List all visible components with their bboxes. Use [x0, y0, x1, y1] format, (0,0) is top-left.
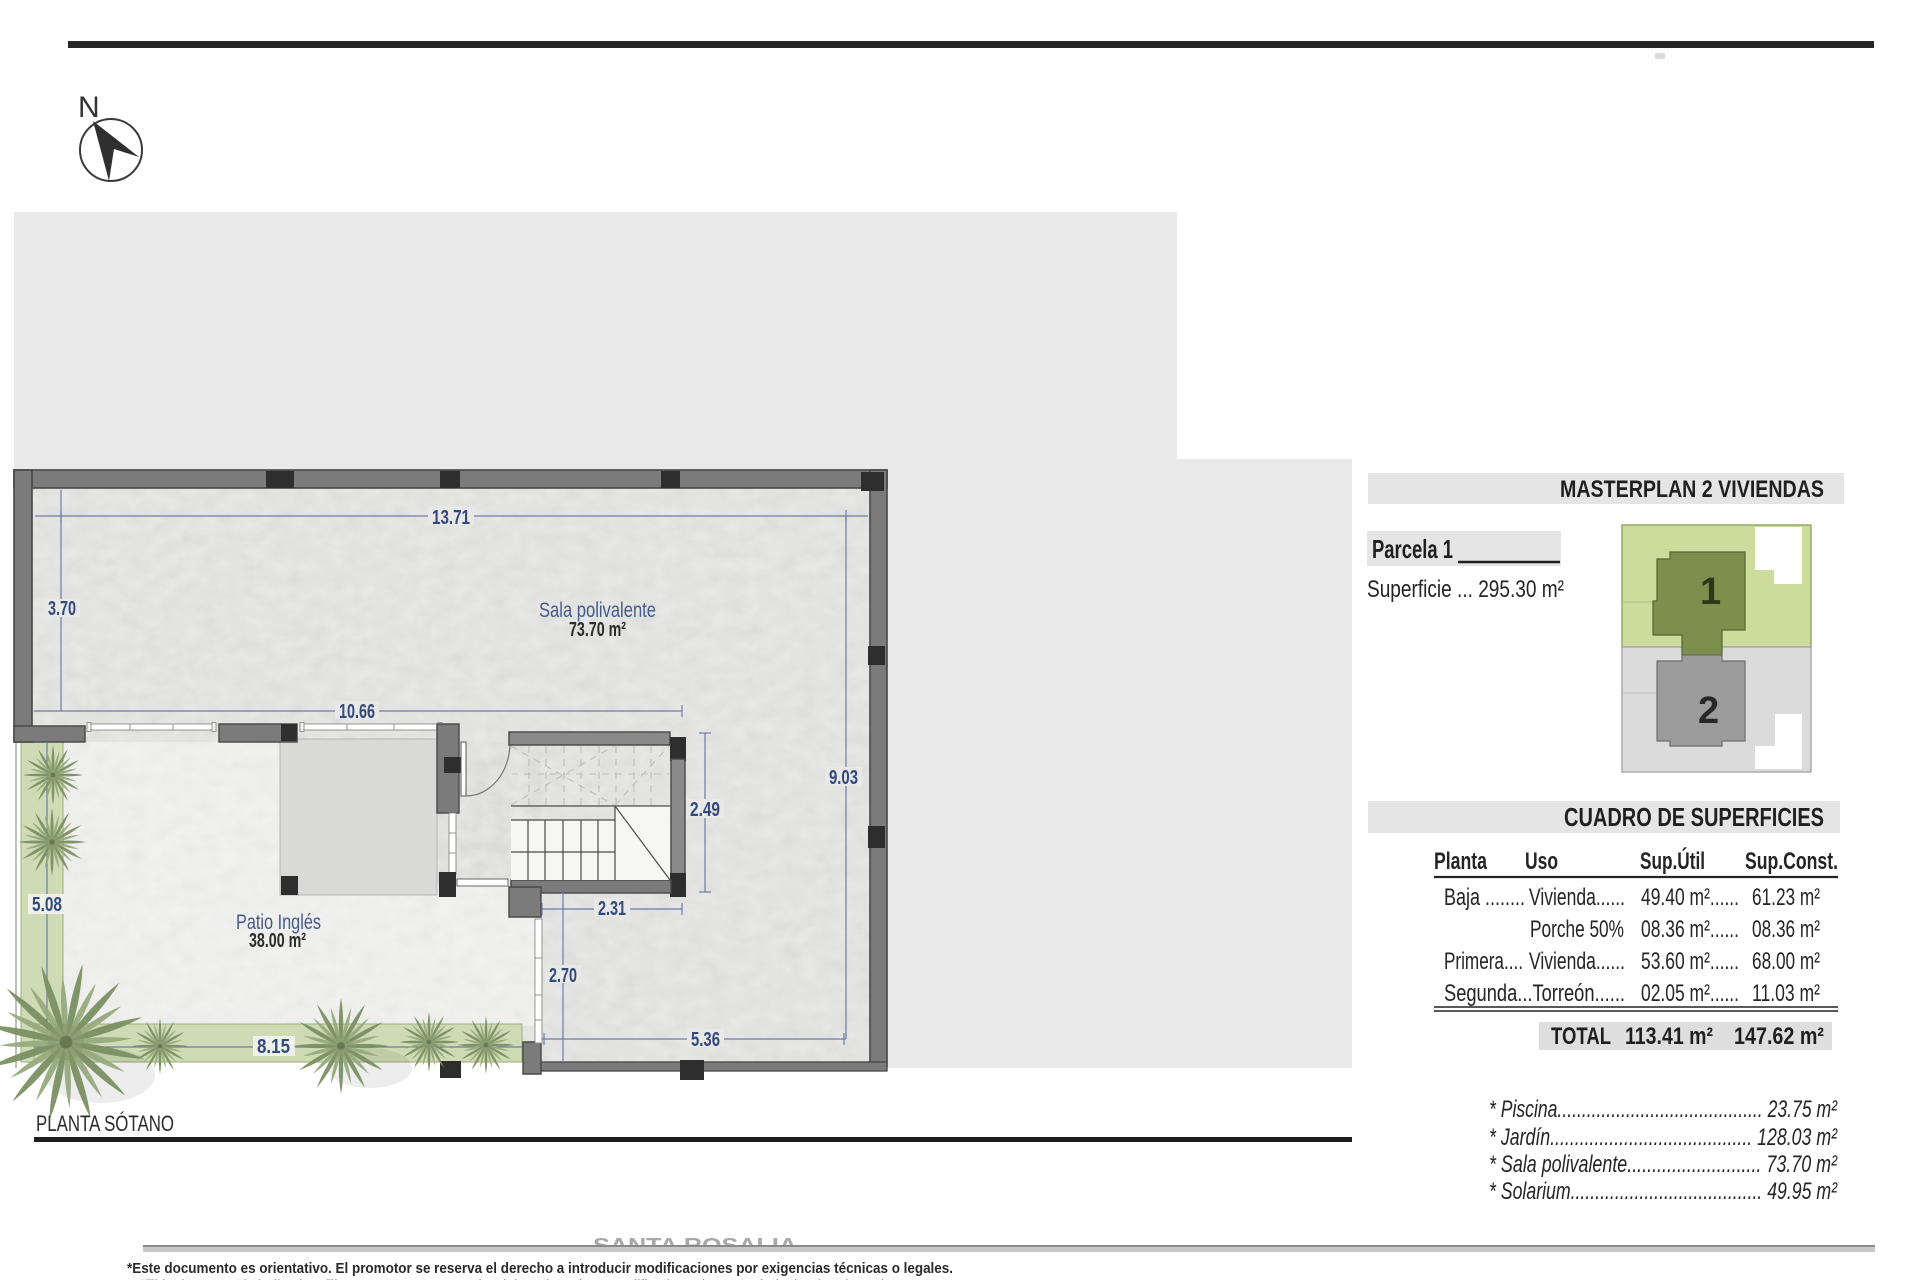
svg-text:Sup.Útil: Sup.Útil — [1640, 847, 1705, 875]
svg-text:2: 2 — [1698, 690, 1719, 732]
svg-text:113.41 m²: 113.41 m² — [1625, 1023, 1713, 1050]
svg-text:2.70: 2.70 — [549, 965, 577, 987]
svg-text:68.00 m²: 68.00 m² — [1752, 948, 1820, 975]
svg-text:2.49: 2.49 — [690, 799, 720, 821]
svg-text:CUADRO DE SUPERFICIES: CUADRO DE SUPERFICIES — [1564, 802, 1824, 832]
svg-text:13.71: 13.71 — [432, 507, 470, 529]
svg-text:49.40 m²......: 49.40 m²...... — [1641, 884, 1739, 911]
svg-text:Primera....: Primera.... — [1444, 948, 1523, 975]
svg-text:Vivienda......: Vivienda...... — [1529, 884, 1625, 911]
svg-text:Planta: Planta — [1434, 848, 1487, 875]
svg-text:53.60 m²......: 53.60 m²...... — [1641, 948, 1739, 975]
svg-text:10.66: 10.66 — [339, 701, 375, 723]
svg-text:* Jardín......................: * Jardín................................… — [1489, 1124, 1838, 1151]
svg-text:9.03: 9.03 — [829, 767, 858, 789]
svg-text:Baja ........: Baja ........ — [1444, 884, 1525, 911]
svg-text:61.23 m²: 61.23 m² — [1752, 884, 1820, 911]
svg-text:* Sala polivalente............: * Sala polivalente......................… — [1489, 1151, 1838, 1178]
svg-text:Parcela 1: Parcela 1 — [1372, 534, 1453, 564]
svg-text:38.00 m²: 38.00 m² — [249, 930, 306, 952]
svg-text:Uso: Uso — [1525, 848, 1558, 875]
svg-text:5.08: 5.08 — [32, 894, 62, 916]
svg-text:Porche 50%: Porche 50% — [1530, 916, 1624, 943]
svg-text:8.15: 8.15 — [257, 1036, 290, 1058]
svg-text:Sup.Const.: Sup.Const. — [1745, 848, 1838, 875]
svg-text:11.03 m²: 11.03 m² — [1752, 980, 1820, 1007]
svg-text:Superficie ... 295.30 m²: Superficie ... 295.30 m² — [1367, 576, 1564, 603]
svg-text:* Solarium....................: * Solarium..............................… — [1489, 1178, 1838, 1205]
svg-text:* Piscina.....................: * Piscina...............................… — [1489, 1096, 1838, 1123]
svg-text:1: 1 — [1700, 571, 1721, 613]
svg-text:5.36: 5.36 — [691, 1029, 720, 1051]
svg-text:02.05 m²......: 02.05 m²...... — [1641, 980, 1739, 1007]
svg-text:Vivienda......: Vivienda...... — [1529, 948, 1625, 975]
svg-text:*This document is indicative.: *This document is indicative. The promot… — [140, 1276, 940, 1280]
svg-text:08.36 m²: 08.36 m² — [1752, 916, 1820, 943]
svg-text:TOTAL: TOTAL — [1551, 1023, 1611, 1050]
svg-text:N: N — [78, 91, 100, 124]
svg-text:08.36 m²......: 08.36 m²...... — [1641, 916, 1739, 943]
svg-text:PLANTA SÓTANO: PLANTA SÓTANO — [36, 1111, 174, 1136]
svg-text:Segunda...Torreón......: Segunda...Torreón...... — [1444, 980, 1625, 1007]
svg-text:3.70: 3.70 — [48, 598, 76, 620]
svg-text:MASTERPLAN 2 VIVIENDAS: MASTERPLAN 2 VIVIENDAS — [1560, 476, 1824, 503]
svg-text:73.70 m²: 73.70 m² — [569, 619, 626, 641]
svg-text:147.62 m²: 147.62 m² — [1734, 1023, 1824, 1050]
svg-text:*Este documento es orientativo: *Este documento es orientativo. El promo… — [127, 1260, 953, 1277]
svg-text:2.31: 2.31 — [598, 898, 626, 920]
